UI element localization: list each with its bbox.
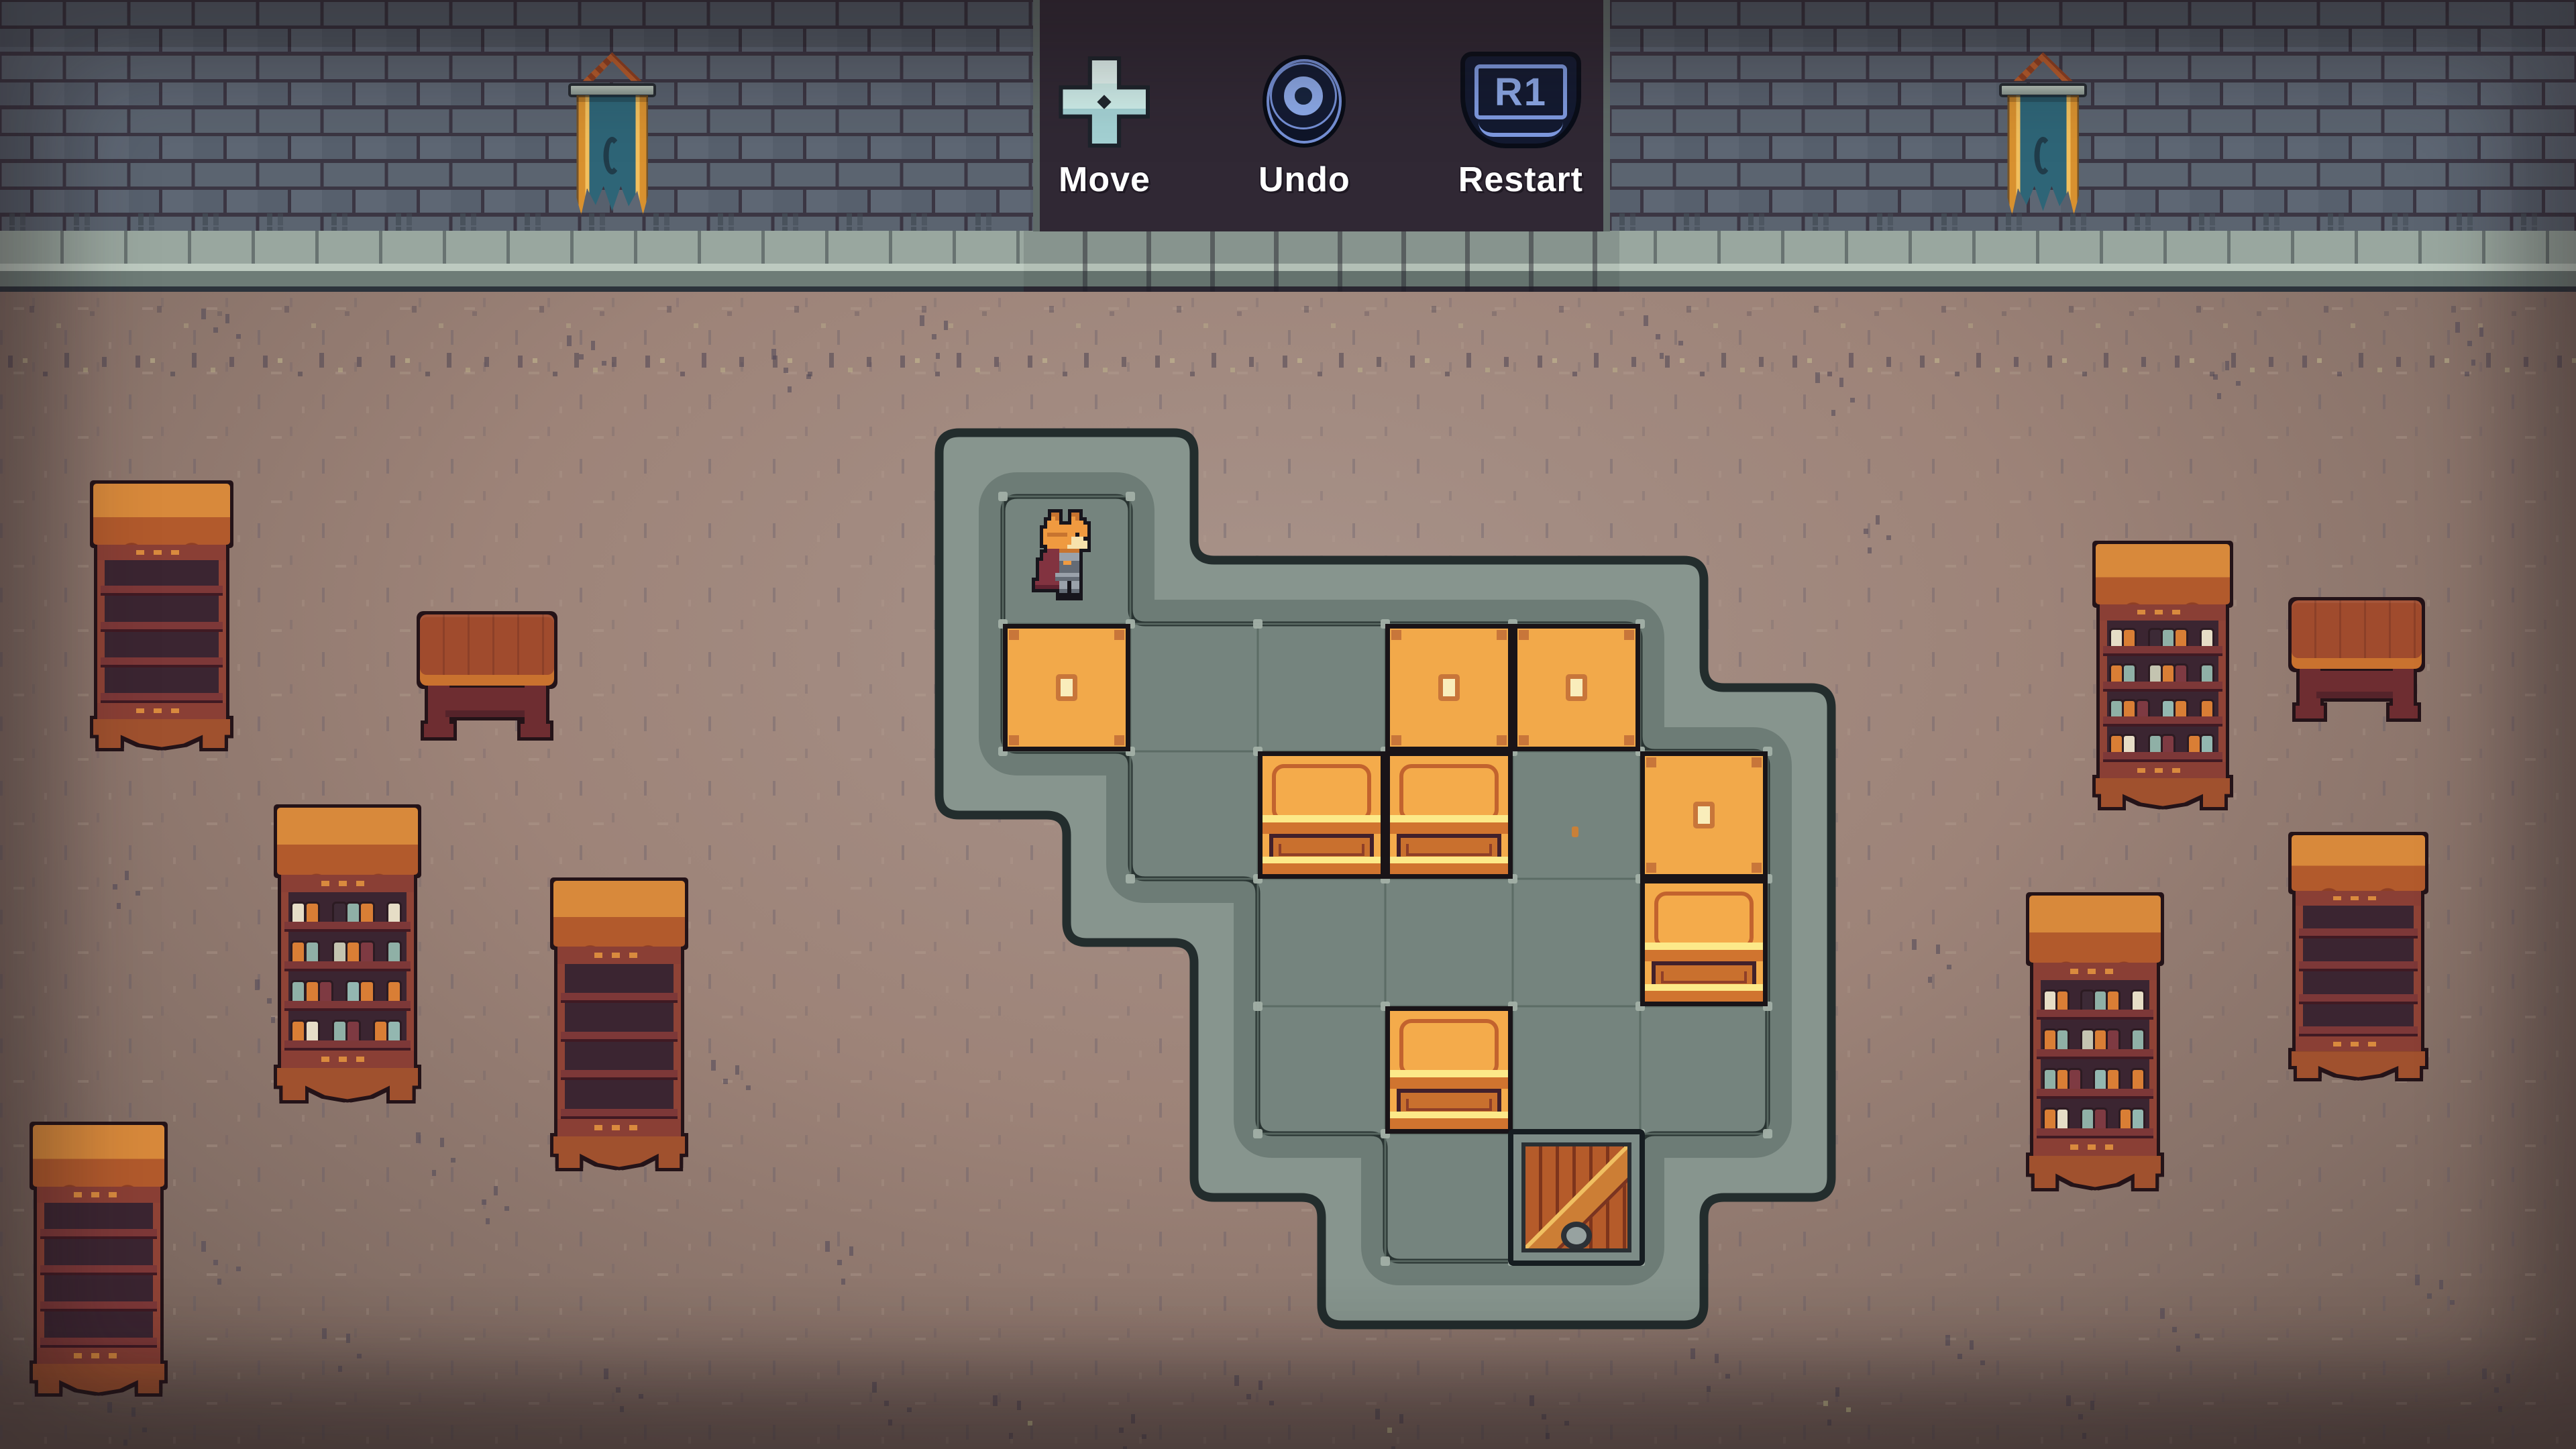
fox-sprite — [1035, 513, 1091, 597]
target-pad — [1640, 751, 1768, 879]
banner-rod — [1999, 83, 2087, 97]
bookshelf-with-books — [277, 808, 418, 1100]
empty-bookshelf — [93, 484, 230, 748]
r1-key-text: R1 — [1474, 64, 1567, 119]
crate-box — [1640, 879, 1768, 1006]
banner-emblem-icon — [604, 137, 621, 174]
restart-control[interactable]: R1 Restart — [1458, 59, 1583, 231]
empty-bookshelf — [33, 1125, 164, 1393]
undo-label: Undo — [1258, 160, 1350, 200]
restart-icon-area: R1 — [1465, 59, 1576, 144]
undo-icon-area — [1267, 59, 1342, 144]
hatch-ring-icon — [1561, 1222, 1592, 1250]
wall-banner — [1999, 52, 2087, 220]
pad-marker — [1693, 802, 1715, 828]
banner-emblem-icon — [2035, 137, 2052, 174]
circle-button-icon — [1267, 59, 1342, 144]
banner-cloth — [576, 95, 648, 215]
side-table — [2292, 600, 2422, 727]
side-table — [420, 614, 554, 746]
table-top — [2292, 600, 2422, 669]
banner-hanger-icon — [583, 52, 642, 87]
dpad-icon — [1063, 60, 1146, 144]
bookshelf-with-books — [2029, 896, 2161, 1188]
crate-box — [1258, 751, 1385, 879]
floor-hatch — [1508, 1129, 1645, 1266]
hud-panel-ledge — [1024, 231, 1619, 292]
banner-rod — [568, 83, 656, 97]
pad-marker — [1566, 674, 1587, 701]
crate-box — [1385, 1006, 1513, 1134]
table-top — [420, 614, 554, 686]
empty-bookshelf — [553, 881, 685, 1168]
pad-marker — [1438, 674, 1460, 701]
target-pad — [1385, 624, 1513, 751]
banner-cloth — [2007, 95, 2079, 215]
banner-hanger-icon — [2014, 52, 2073, 87]
target-pad — [1003, 624, 1130, 751]
crate-box — [1385, 751, 1513, 879]
r1-button-icon: R1 — [1465, 56, 1576, 144]
empty-bookshelf — [2292, 835, 2425, 1078]
hatch-wood — [1521, 1142, 1631, 1252]
move-label: Move — [1059, 160, 1150, 200]
bookshelf-with-books — [2096, 544, 2230, 807]
target-pad — [1513, 624, 1640, 751]
wall-banner — [568, 52, 656, 220]
player-fox — [1035, 513, 1091, 597]
move-control[interactable]: Move — [1059, 59, 1150, 231]
move-icon-area — [1063, 59, 1146, 144]
undo-control[interactable]: Undo — [1258, 59, 1350, 231]
pad-marker — [1056, 674, 1077, 701]
hud-panel: Move Undo R1 Restart — [1033, 0, 1610, 231]
restart-label: Restart — [1458, 160, 1583, 200]
floor-pebble — [1572, 826, 1578, 837]
game-screen: Move Undo R1 Restart — [0, 0, 2576, 1449]
